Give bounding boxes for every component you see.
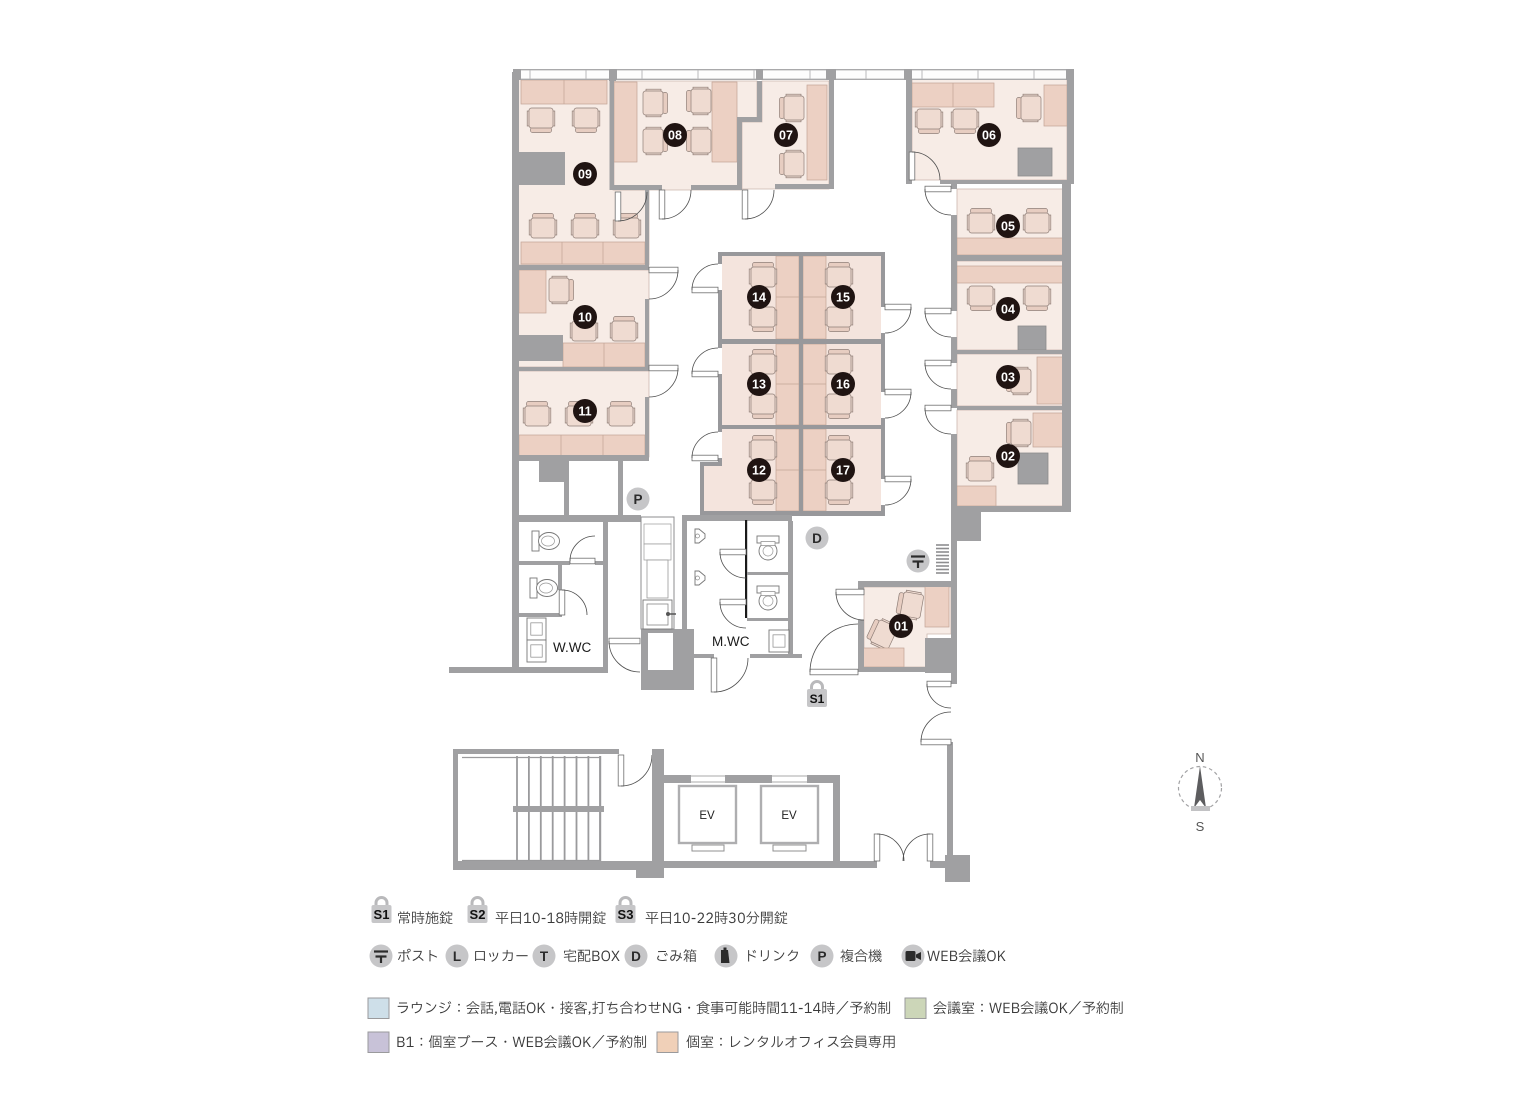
svg-text:08: 08	[668, 129, 682, 143]
svg-text:W.WC: W.WC	[553, 640, 591, 655]
svg-text:M.WC: M.WC	[712, 634, 750, 649]
svg-text:S1: S1	[374, 907, 390, 922]
svg-text:02: 02	[1001, 450, 1015, 464]
svg-text:S: S	[1196, 819, 1205, 834]
svg-text:16: 16	[836, 378, 850, 392]
svg-text:17: 17	[836, 464, 850, 478]
svg-text:14: 14	[752, 291, 766, 305]
svg-text:15: 15	[836, 291, 850, 305]
svg-text:S2: S2	[470, 907, 486, 922]
svg-text:05: 05	[1001, 220, 1015, 234]
svg-text:10: 10	[578, 311, 592, 325]
svg-text:12: 12	[752, 464, 766, 478]
svg-text:09: 09	[578, 168, 592, 182]
svg-text:13: 13	[752, 378, 766, 392]
svg-text:T: T	[540, 949, 549, 964]
svg-text:P: P	[633, 492, 642, 507]
svg-text:11: 11	[578, 405, 591, 419]
svg-text:P: P	[817, 949, 826, 964]
svg-text:03: 03	[1001, 371, 1015, 385]
svg-text:01: 01	[894, 620, 908, 634]
svg-text:S1: S1	[810, 692, 825, 706]
svg-text:S3: S3	[618, 907, 634, 922]
svg-text:N: N	[1195, 750, 1204, 765]
svg-text:04: 04	[1001, 303, 1015, 317]
svg-text:L: L	[453, 949, 461, 964]
svg-text:07: 07	[779, 129, 793, 143]
svg-text:EV: EV	[699, 810, 715, 822]
svg-text:D: D	[631, 949, 641, 964]
svg-text:EV: EV	[781, 810, 797, 822]
svg-text:06: 06	[982, 129, 996, 143]
svg-text:D: D	[812, 531, 822, 546]
